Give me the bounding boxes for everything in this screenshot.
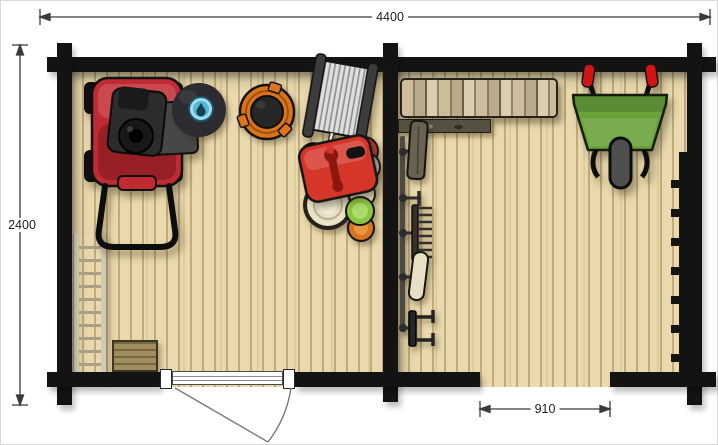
dimension-depth-label: 2400 xyxy=(4,218,40,232)
wall-partition xyxy=(383,43,398,402)
ladder xyxy=(74,234,106,380)
door-jamb-right xyxy=(283,369,295,389)
door-swing xyxy=(175,388,291,442)
wall-left xyxy=(57,43,72,405)
wall-rack-bracket xyxy=(671,354,679,362)
wall-rack-bracket xyxy=(671,325,679,333)
wall-rack-bracket xyxy=(671,209,679,217)
wooden-plank-shelf xyxy=(398,119,491,133)
plank-knot xyxy=(421,124,433,129)
wall-rack-bracket xyxy=(671,238,679,246)
wall-rack-bracket xyxy=(671,296,679,304)
doormat xyxy=(112,340,158,372)
plank-knot xyxy=(454,125,463,129)
wall-rack-bracket xyxy=(671,180,679,188)
wall-rack-bar xyxy=(679,152,687,380)
firewood-stack xyxy=(400,78,558,118)
entrance-door xyxy=(172,371,283,385)
wall-bottom-middle-segment xyxy=(295,372,480,387)
dimension-width-label: 4400 xyxy=(372,10,408,24)
wall-bottom-left-segment xyxy=(47,372,160,387)
wall-top xyxy=(47,57,716,72)
ladder-rungs xyxy=(79,236,101,380)
wall-rack-bracket xyxy=(671,267,679,275)
floor-plan: 4400 2400 910 xyxy=(0,0,718,445)
wall-right xyxy=(687,43,702,405)
garden-tool-rack xyxy=(400,136,405,332)
dimension-opening-label: 910 xyxy=(531,402,560,416)
wall-bottom-right-segment xyxy=(610,372,716,387)
door-jamb-left xyxy=(160,369,172,389)
